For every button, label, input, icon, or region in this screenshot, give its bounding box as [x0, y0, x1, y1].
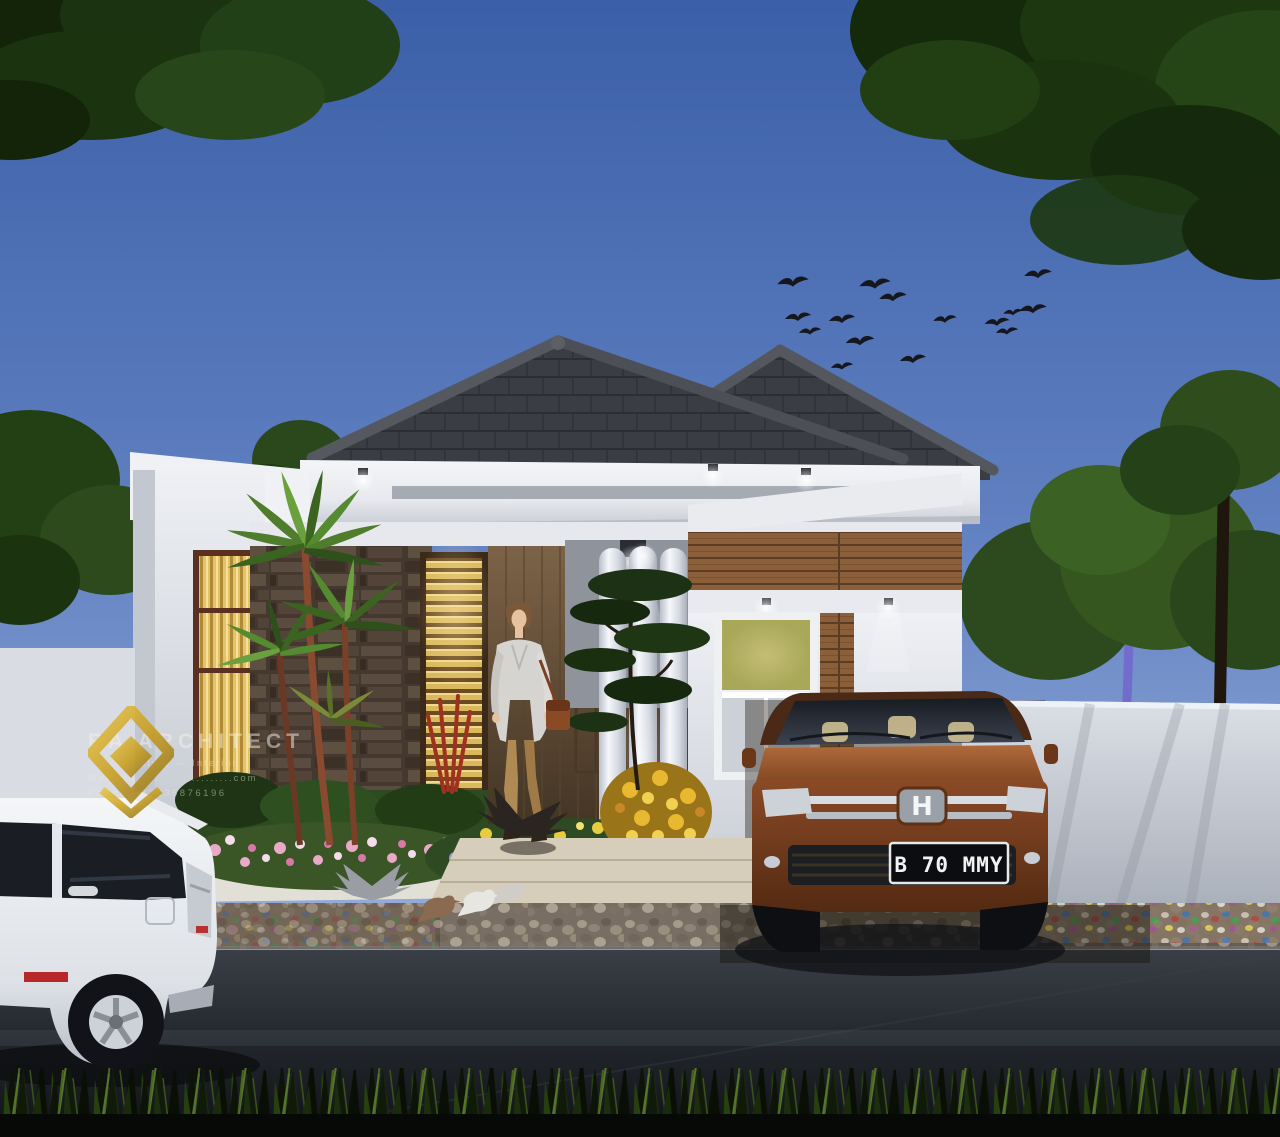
- suv-fog-light: [764, 856, 780, 868]
- downlight-glow: [701, 464, 725, 488]
- suv-license-plate: B 70 MMY: [890, 843, 1008, 883]
- suv-hood: [755, 745, 1044, 786]
- mpv-wheel: [68, 974, 164, 1070]
- suv-headlight-right: [1006, 786, 1046, 813]
- light-beam: [688, 590, 962, 613]
- downlight-glow: [794, 468, 818, 492]
- gate-window: [196, 553, 258, 805]
- suv-mirror: [742, 748, 756, 768]
- architectural-render-scene: H B 70 MMY: [0, 0, 1280, 1137]
- suv-fog-light: [1024, 852, 1040, 864]
- timber-band: [688, 532, 962, 590]
- mpv-decal: [24, 972, 68, 982]
- foreground-grass: [0, 1068, 1280, 1137]
- left-boundary-wall: [0, 648, 135, 813]
- suv-mirror: [1044, 744, 1058, 764]
- downlight-glow: [351, 468, 375, 492]
- mpv-door-handle: [68, 886, 98, 896]
- honda-emblem: H: [898, 788, 946, 824]
- suv-headlight-left: [762, 788, 812, 817]
- suv-honda: H B 70 MMY: [735, 691, 1065, 976]
- scene-canvas: H B 70 MMY: [0, 0, 1280, 1137]
- svg-text:H: H: [911, 792, 933, 822]
- svg-text:B 70 MMY: B 70 MMY: [894, 853, 1003, 877]
